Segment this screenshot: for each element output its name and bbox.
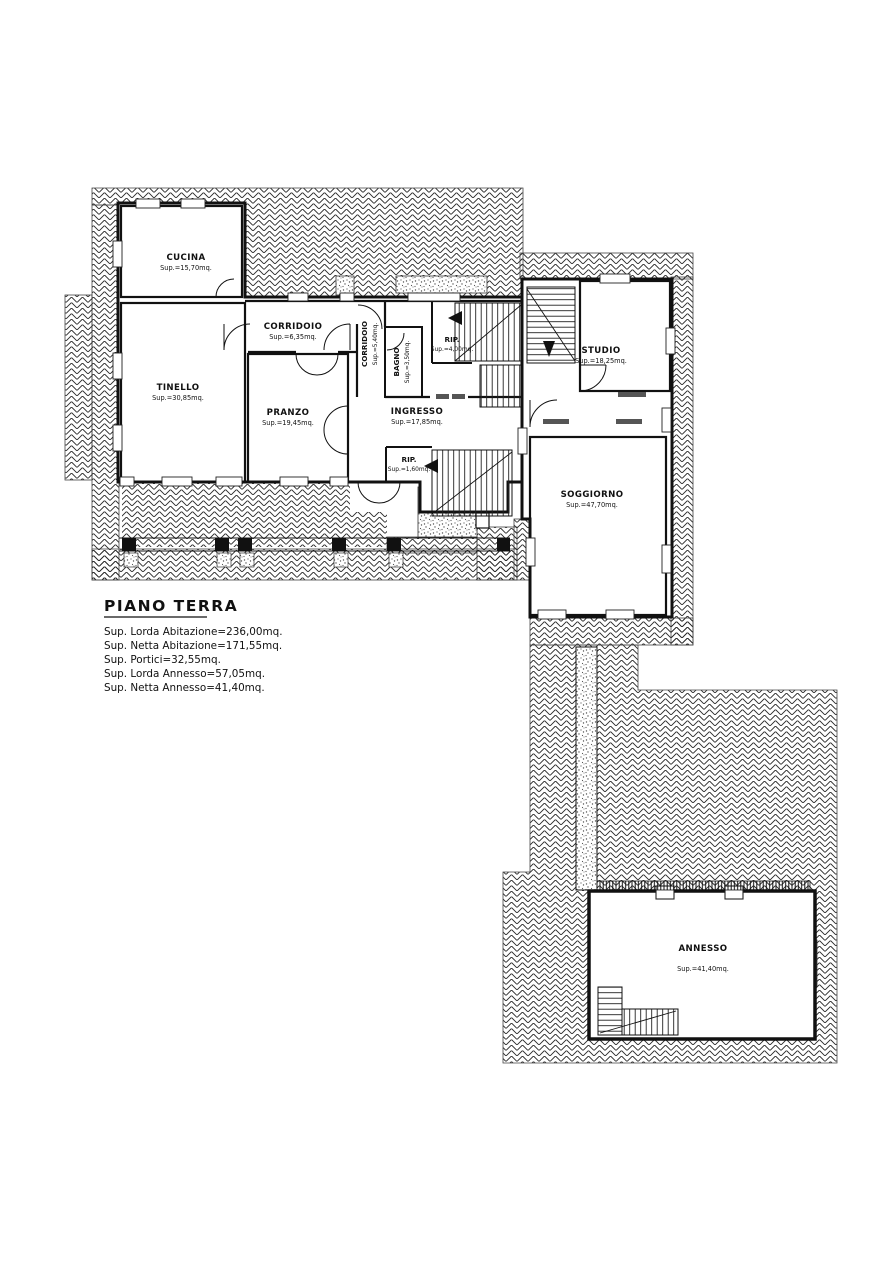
pillar-base <box>240 553 254 567</box>
pillar <box>122 538 136 551</box>
tinello-area: Sup.=30,85mq. <box>152 394 204 402</box>
corridoio-vert-area: Sup.=5,40mq. <box>373 323 379 366</box>
hatch-south-fill-2 <box>477 527 517 580</box>
flowerbed <box>336 276 354 295</box>
corridoio-label: CORRIDOIO <box>264 322 323 332</box>
hatch-west-wing <box>65 295 92 480</box>
window <box>662 408 671 432</box>
ingresso-label: INGRESSO <box>391 407 443 417</box>
pranzo-area: Sup.=19,45mq. <box>262 419 314 427</box>
window <box>340 293 354 301</box>
hatch-portico-floor <box>122 482 350 547</box>
window <box>666 328 675 354</box>
pillar <box>238 538 252 551</box>
window <box>600 274 630 283</box>
window <box>120 477 134 486</box>
stairs-right-wing <box>527 287 575 363</box>
plan-title: PIANO TERRA <box>104 597 238 615</box>
cucina-label: CUCINA <box>166 253 205 263</box>
sill <box>436 394 449 399</box>
rip-low-area: Sup.=1,60mq. <box>388 467 431 473</box>
pranzo-label: PRANZO <box>267 408 310 418</box>
rip-top-label: RIP. <box>445 335 460 344</box>
ingresso-area: Sup.=17,85mq. <box>391 418 443 426</box>
flowerbed-strip <box>576 647 597 890</box>
window <box>606 610 634 619</box>
window <box>216 477 242 486</box>
corridoio-area: Sup.=6,35mq. <box>269 333 317 341</box>
stairs-lower <box>424 450 512 516</box>
window <box>288 293 308 301</box>
window <box>181 199 205 208</box>
window <box>113 425 122 451</box>
floor-plan-drawing: CUCINA Sup.=15,70mq. TINELLO Sup.=30,85m… <box>0 0 886 1280</box>
summary-line-2: Sup. Netta Abitazione=171,55mq. <box>104 640 282 652</box>
pillar <box>497 538 510 551</box>
cucina-area: Sup.=15,70mq. <box>160 264 212 272</box>
pillar <box>215 538 229 551</box>
pillar <box>387 538 401 551</box>
corridoio-vert-label: CORRIDOIO <box>360 321 369 367</box>
soggiorno-label: SOGGIORNO <box>561 490 624 500</box>
window <box>162 477 192 486</box>
rip-low-label: RIP. <box>402 455 417 464</box>
window <box>113 241 122 267</box>
annesso-area: Sup.=41,40mq. <box>677 965 729 973</box>
flowerbed <box>396 276 487 293</box>
pillar <box>332 538 346 551</box>
pillar-base <box>124 553 138 567</box>
summary-line-4: Sup. Lorda Annesso=57,05mq. <box>104 668 265 680</box>
pillar-base <box>389 553 403 567</box>
floor-plan-page: CUCINA Sup.=15,70mq. TINELLO Sup.=30,85m… <box>0 0 886 1280</box>
bagno-area: Sup.=3,50mq. <box>405 341 411 384</box>
window <box>538 610 566 619</box>
window <box>526 538 535 566</box>
studio-label: STUDIO <box>581 346 620 356</box>
studio-area: Sup.=18,25mq. <box>575 357 627 365</box>
pillar-base <box>217 553 231 567</box>
window <box>113 353 122 379</box>
window <box>330 477 348 486</box>
summary-line-5: Sup. Netta Annesso=41,40mq. <box>104 682 265 694</box>
rip-top-area: Sup.=4,00mq. <box>431 347 474 353</box>
window <box>136 199 160 208</box>
soggiorno-area: Sup.=47,70mq. <box>566 501 618 509</box>
bagno-label: BAGNO <box>392 347 401 376</box>
tinello-label: TINELLO <box>157 383 200 393</box>
window <box>280 477 308 486</box>
sill <box>616 419 642 424</box>
summary-line-1: Sup. Lorda Abitazione=236,00mq. <box>104 626 283 638</box>
hatch-portico-floor-2 <box>350 512 387 547</box>
hatch-south-band <box>92 549 517 580</box>
sill <box>543 419 569 424</box>
pillar-base <box>334 553 348 567</box>
annesso-label: ANNESSO <box>678 944 727 954</box>
window <box>518 428 527 454</box>
sill <box>618 392 646 397</box>
pergola-grill <box>597 881 810 890</box>
hatch-below-soggiorno <box>530 618 693 645</box>
sill <box>452 394 465 399</box>
window <box>662 545 671 573</box>
window <box>408 293 460 301</box>
summary-line-3: Sup. Portici=32,55mq. <box>104 654 221 666</box>
